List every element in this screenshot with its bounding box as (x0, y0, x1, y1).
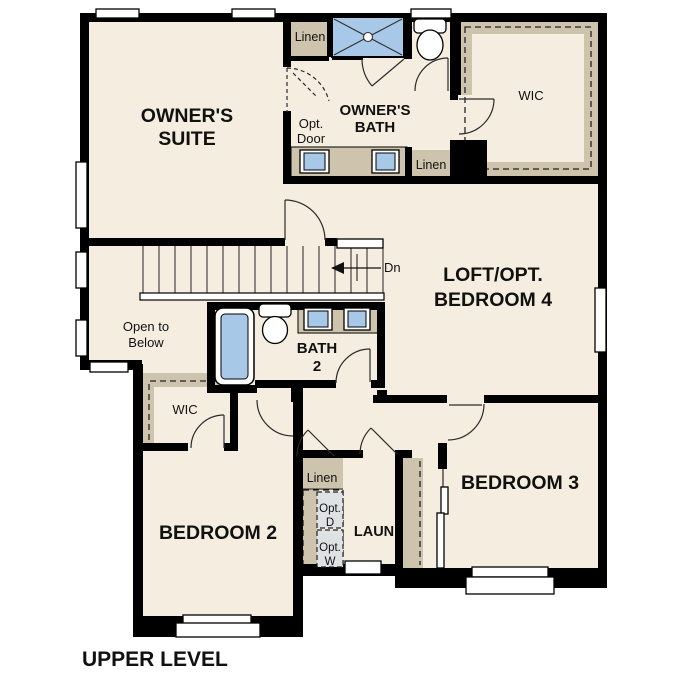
bedroom2-wic-label: WIC (172, 402, 197, 417)
owners-bath-label-line1: OWNER'S (339, 102, 410, 119)
laundry-label: LAUN (354, 524, 394, 540)
sink-basin (348, 311, 366, 327)
stair-top-railing (337, 239, 383, 248)
bedroom3-label: BEDROOM 3 (461, 472, 579, 494)
wall-segment (438, 443, 447, 469)
window-bay-inner (472, 567, 548, 577)
window (96, 9, 139, 18)
wall-segment (291, 56, 329, 61)
open-to-below-label-line1: Open to (123, 319, 169, 334)
opt-washer-label-line2: W (325, 556, 336, 568)
owners-suite-label-line1: OWNER'S (141, 105, 233, 127)
window-bay-outer (466, 577, 554, 594)
open-to-below-label-line2: Below (128, 335, 164, 350)
stairs-down-label: Dn (384, 260, 401, 275)
window (90, 362, 128, 372)
linen-hall-label: Linen (307, 471, 338, 485)
bedroom2-label: BEDROOM 2 (159, 522, 277, 544)
opt-washer-label-line1: Opt. (319, 542, 341, 554)
window-bay-outer (176, 623, 260, 637)
wall-segment (283, 176, 607, 184)
floor-plan-drawing: OWNER'S SUITE OWNER'S BATH WIC Linen Lin… (0, 0, 687, 687)
wall-segment (325, 238, 337, 246)
window (411, 9, 451, 18)
wall-segment (207, 302, 215, 390)
linen-owners-hall-label: Linen (295, 30, 326, 44)
shower-drain (364, 33, 373, 42)
opt-dryer-label-line1: Opt. (319, 503, 341, 515)
wall-segment (377, 302, 385, 388)
opt-dryer-label-line2: D (326, 517, 334, 529)
window (76, 320, 87, 356)
wall-segment (371, 380, 385, 388)
sliding-door-panel (437, 513, 444, 568)
opt-door-label-line2: Door (297, 131, 326, 146)
wall-segment (450, 140, 487, 177)
bathtub-basin (221, 314, 248, 379)
linen-owners-bath-label: Linen (416, 158, 447, 172)
toilet-bowl (263, 317, 288, 344)
wall-segment (283, 13, 291, 67)
wall-segment (293, 450, 363, 458)
wall-segment (293, 390, 303, 620)
wall-segment (453, 13, 461, 95)
sliding-door-panel (441, 487, 448, 514)
wall-segment (404, 13, 412, 59)
loft-label-line1: LOFT/OPT. (443, 264, 543, 286)
sink-basin (376, 153, 395, 170)
wall-segment (283, 111, 291, 177)
loft-label-line2: BEDROOM 4 (434, 289, 552, 311)
laundry-recess-shelf (303, 490, 317, 568)
floor-plan-page: OWNER'S SUITE OWNER'S BATH WIC Linen Lin… (0, 0, 687, 687)
window (76, 162, 87, 228)
sink-basin (308, 311, 328, 327)
bath2-label-line2: 2 (313, 358, 321, 375)
wall-segment (373, 395, 447, 403)
toilet-bowl (417, 30, 443, 60)
window (76, 252, 87, 288)
wall-segment (484, 395, 607, 403)
bedroom2-wic-floor (154, 387, 233, 451)
wall-segment (405, 147, 412, 177)
page-title: UPPER LEVEL (82, 648, 228, 671)
toilet-tank (259, 304, 291, 317)
owners-bath-label-line2: BATH (355, 119, 396, 136)
wall-segment (80, 238, 285, 246)
window (595, 288, 606, 352)
window (345, 561, 381, 574)
opt-door-label-line1: Opt. (299, 116, 324, 131)
owners-wic-label: WIC (518, 88, 543, 103)
wall-segment (138, 443, 188, 451)
wall-segment (133, 364, 143, 626)
bath2-label-line1: BATH (297, 340, 338, 357)
wall-segment (395, 450, 403, 568)
window (232, 9, 275, 18)
owners-suite-label-line2: SUITE (158, 128, 215, 150)
stair-bottom-railing (140, 293, 384, 300)
wall-segment (255, 380, 336, 388)
sink-basin (304, 153, 325, 170)
